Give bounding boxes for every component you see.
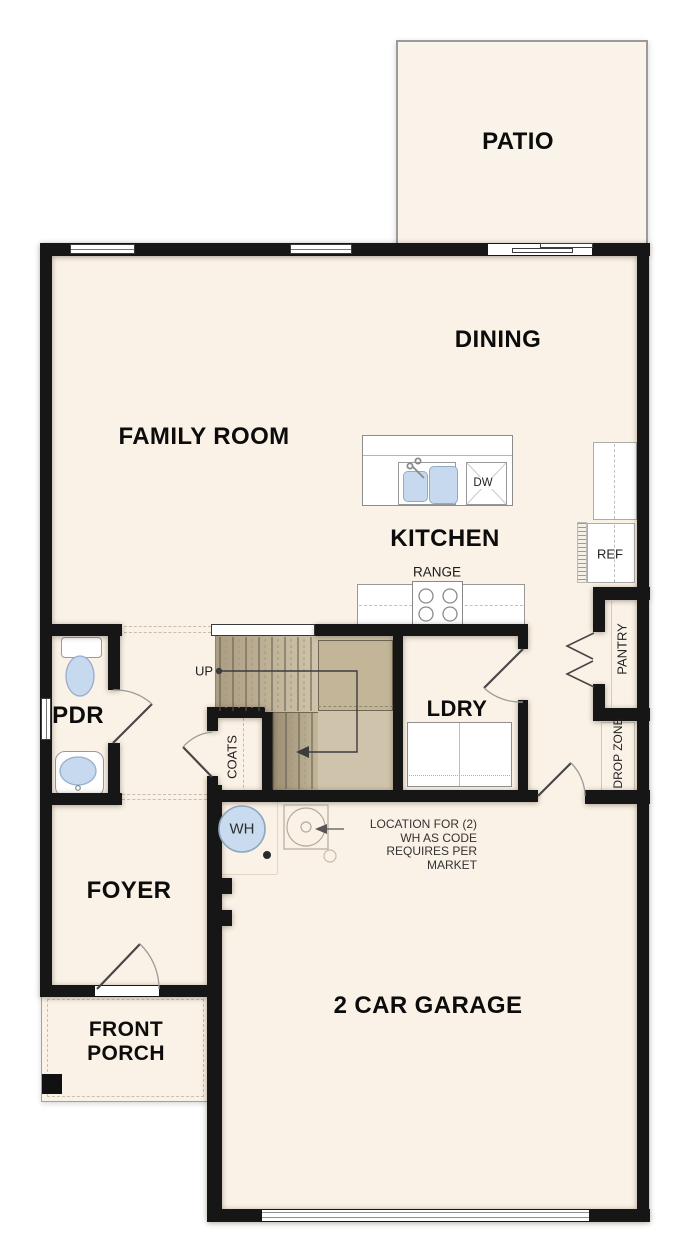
room-label-kitchen: KITCHEN [390, 525, 499, 553]
porch-label-line2: PORCH [87, 1042, 165, 1066]
wh-annotation-line4: MARKET [337, 859, 477, 873]
room-label-patio: PATIO [482, 128, 554, 156]
room-label-pdr: PDR [52, 702, 104, 730]
room-label-garage: 2 CAR GARAGE [334, 992, 523, 1020]
wh-annotation-line2: WH AS CODE [337, 832, 477, 846]
floor-plan: PATIO DINING FAMILY ROOM KITCHEN LDRY PD… [0, 0, 680, 1252]
dw-label: DW [472, 477, 493, 489]
wh-label: WH [230, 821, 255, 838]
range-label: RANGE [413, 565, 461, 580]
wh-annotation-note: LOCATION FOR (2) WH AS CODE REQUIRES PER… [337, 818, 477, 872]
room-label-family-room: FAMILY ROOM [118, 423, 289, 451]
room-label-foyer: FOYER [87, 877, 172, 905]
up-label: UP [195, 664, 213, 679]
drop-zone-label: DROP ZONE [611, 717, 625, 788]
room-label-dining: DINING [455, 326, 541, 354]
ref-label: REF [597, 547, 623, 562]
coats-label: COATS [225, 735, 240, 779]
room-label-ldry: LDRY [427, 696, 488, 722]
pantry-label: PANTRY [615, 623, 630, 675]
porch-label-line1: FRONT [87, 1018, 165, 1042]
room-label-front-porch: FRONT PORCH [87, 1018, 165, 1066]
wh-annotation-line3: REQUIRES PER [337, 845, 477, 859]
wh-annotation-line1: LOCATION FOR (2) [337, 818, 477, 832]
